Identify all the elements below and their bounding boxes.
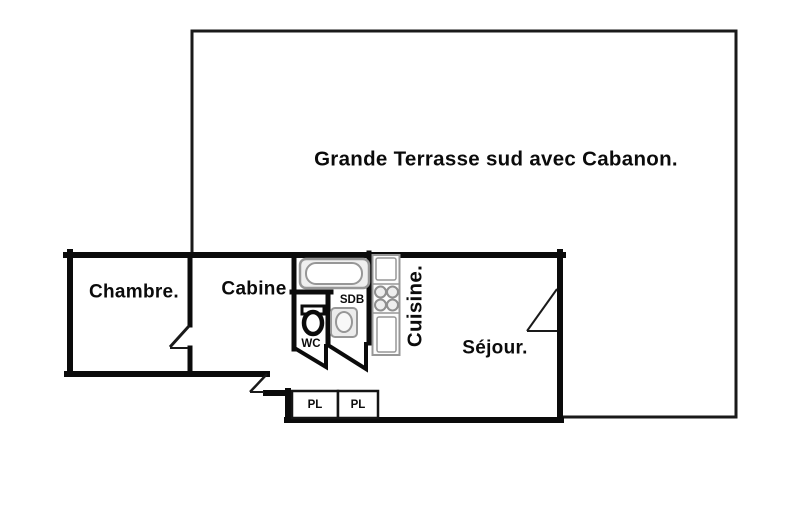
bathtub-icon — [300, 259, 369, 288]
floor-plan: Grande Terrasse sud avec Cabanon. Chambr… — [0, 0, 800, 505]
chambre-label: Chambre. — [89, 282, 179, 303]
sejour-door-leaf — [527, 289, 557, 331]
bathtub-inner — [306, 263, 362, 284]
sdb-label: SDB — [340, 294, 364, 306]
closet-right-label: PL — [351, 399, 366, 411]
sejour-door — [527, 289, 557, 331]
chambre-door-leaf — [170, 326, 189, 347]
kitchen-counter-icon — [373, 255, 400, 355]
toilet-icon — [302, 306, 324, 334]
burner — [375, 287, 386, 298]
kitchen-sink — [376, 258, 396, 280]
kitchen-cabinet — [377, 317, 396, 352]
terrace-label: Grande Terrasse sud avec Cabanon. — [314, 148, 678, 171]
chambre-door — [170, 326, 189, 348]
burner — [387, 287, 398, 298]
burner — [375, 300, 386, 311]
burner — [387, 300, 398, 311]
wc-label: WC — [301, 338, 320, 350]
sink-basin — [336, 312, 352, 332]
sejour-label: Séjour. — [462, 338, 527, 359]
cuisine-label: Cuisine. — [404, 265, 427, 347]
terrace-outline — [192, 31, 736, 417]
floor-plan-drawing: Grande Terrasse sud avec Cabanon. Chambr… — [0, 0, 800, 505]
sdb-door-leaf — [331, 344, 366, 369]
cabine-label: Cabine — [221, 279, 286, 300]
toilet-bowl — [304, 312, 322, 334]
closet-left-label: PL — [308, 399, 323, 411]
bathroom-sink-icon — [331, 308, 357, 337]
